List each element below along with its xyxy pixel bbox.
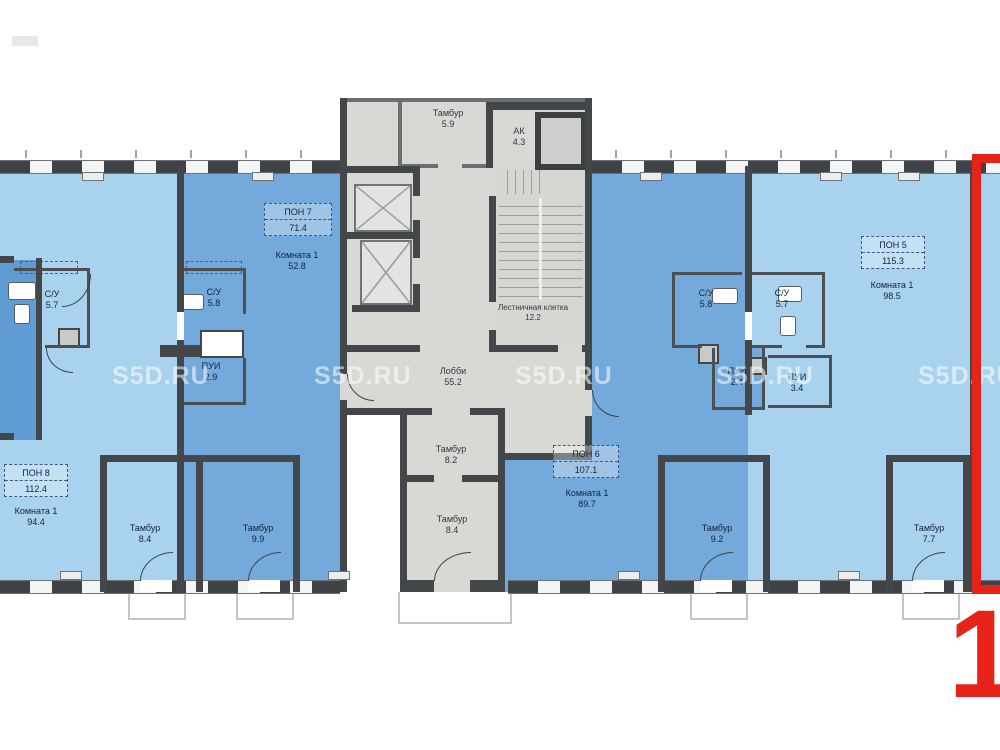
door-gap (177, 312, 184, 340)
su-wall (672, 272, 675, 348)
dimension-tick (190, 150, 192, 158)
elevator-shaft-small (354, 184, 412, 232)
unit-label-box-pon6: ПОН 6 107.1 (553, 445, 619, 478)
room-label-su58-right: С/У 5.8 (676, 288, 736, 310)
entry-porch (236, 592, 294, 620)
dimension-tick (725, 150, 727, 158)
core-tambour-divider (462, 475, 505, 482)
dimension-tick (890, 150, 892, 158)
room-label-su58-left: С/У 5.8 (184, 287, 244, 309)
core-tambour-divider (404, 475, 434, 482)
elevator-divider-wall (344, 232, 420, 239)
tambour-wall (196, 455, 203, 592)
tambur-top-left-wall (398, 100, 402, 168)
wall-sliver-right (36, 258, 42, 440)
room-label-pon7-room: Комната 1 52.8 (254, 250, 340, 272)
elevator-shaft2-bottom-wall (352, 305, 420, 312)
room-label-tambur-84-core: Тамбур 8.4 (417, 514, 487, 536)
unit-label-box-pon8: ПОН 8 112.4 (4, 464, 68, 497)
core-tambour-right-wall (498, 415, 505, 592)
lobby-bottom-wall (470, 408, 505, 415)
dimension-tick (615, 150, 617, 158)
entry-porch (128, 592, 186, 620)
wall-stub (0, 256, 14, 263)
dimension-tick (945, 150, 947, 158)
unit-name: ПОН 7 (265, 204, 331, 220)
radiator (640, 172, 662, 181)
su-wall (822, 272, 825, 348)
dimension-tick (25, 150, 27, 158)
su-wall (184, 268, 246, 271)
tambour-wall (886, 455, 970, 462)
pui-wall (768, 405, 832, 408)
pui-wall (184, 402, 246, 405)
door-gap (248, 580, 280, 592)
dimension-tick (135, 150, 137, 158)
room-label-stair: Лестничная клетка 12.2 (493, 303, 573, 322)
dimension-tick (780, 150, 782, 158)
room-label-pon5-room: Комната 1 98.5 (856, 280, 928, 302)
door-gap (912, 580, 944, 592)
radiator (618, 571, 640, 580)
dimension-tick (670, 150, 672, 158)
unit-label-box-pon5: ПОН 5 115.3 (861, 236, 925, 269)
elevator-top-wall (344, 166, 420, 173)
door-gap (585, 390, 592, 416)
lobby-bottom-wall (344, 408, 432, 415)
elevator-door-gap (413, 258, 420, 284)
unit-name: ПОН 6 (554, 446, 618, 462)
ak-top-wall (486, 102, 592, 110)
highlight-rectangle (972, 154, 1000, 594)
tambour-wall (100, 455, 107, 592)
su-wall (752, 345, 782, 348)
room-label-tambur-92: Тамбур 9.2 (682, 523, 752, 545)
room-label-pon6-room: Комната 1 89.7 (549, 488, 625, 510)
wet-wall-block (160, 345, 202, 357)
core-tambour-left-wall (400, 415, 407, 592)
unit-label-box-pon7: ПОН 7 71.4 (264, 203, 332, 236)
niche-box (200, 330, 244, 358)
room-label-su57-left: С/У 5.7 (22, 289, 82, 311)
door-gap (140, 580, 172, 592)
tambour-wall (963, 455, 970, 592)
shaft-cross-icon (356, 186, 410, 230)
pui-wall (829, 355, 832, 408)
radiator (328, 571, 350, 580)
room-label-tambur-82: Тамбур 8.2 (416, 444, 486, 466)
radiator (898, 172, 920, 181)
watermark: S5D.RU (716, 362, 814, 391)
unit-area: 115.3 (862, 253, 924, 268)
elevator-shaft-large (360, 240, 412, 305)
entry-porch-main (398, 592, 512, 624)
entry-steps (500, 170, 540, 194)
room-label-pon8-room: Комната 1 94.4 (0, 506, 72, 528)
door-gap (558, 345, 582, 352)
highlight-number: 1 (948, 592, 1000, 717)
pui-wall (243, 358, 246, 402)
tambour-wall (293, 455, 300, 592)
radiator (820, 172, 842, 181)
unit-area: 107.1 (554, 462, 618, 477)
watermark: S5D.RU (515, 362, 613, 391)
door-gap (745, 312, 752, 340)
dimension-tick (835, 150, 837, 158)
unit-name: ПОН 5 (862, 237, 924, 253)
elevator-right-wall (413, 166, 420, 312)
floor-plan-canvas: ПОН 7 71.4 Комната 1 52.8 ПОН 8 112.4 Ко… (0, 0, 1000, 750)
entrance-bottom-wall (470, 580, 505, 592)
radiator (60, 571, 82, 580)
wall-stub (0, 433, 14, 440)
dimension-tick (80, 150, 82, 158)
entrance-bottom-wall (404, 580, 434, 592)
watermark: S5D.RU (112, 362, 210, 391)
tambour-wall (886, 455, 893, 592)
dimension-tick (245, 150, 247, 158)
unit-pon6-ext-fill (505, 460, 592, 592)
room-label-tambur-84-left: Тамбур 8.4 (110, 523, 180, 545)
top-window-wall-left (0, 160, 340, 174)
su-wall (672, 345, 702, 348)
watermark: S5D.RU (314, 362, 412, 391)
room-label-tambur-99: Тамбур 9.9 (223, 523, 293, 545)
radiator (252, 172, 274, 181)
vent-shaft-box (535, 112, 587, 170)
elevator-door-gap (413, 196, 420, 220)
su-wall (806, 345, 825, 348)
stair-flight-divider (539, 198, 542, 300)
entry-porch (690, 592, 748, 620)
room-label-su57-right: С/У 5.7 (752, 288, 812, 310)
su-wall (672, 272, 742, 275)
radiator (82, 172, 104, 181)
tambour-wall (658, 455, 665, 592)
tambour-wall (763, 455, 770, 592)
toilet-fixture (780, 316, 796, 336)
unit-area: 112.4 (5, 481, 67, 496)
door-gap (700, 580, 732, 592)
su-wall (752, 272, 825, 275)
room-label-tambur-top: Тамбур 5.9 (413, 108, 483, 130)
room-label-lobby: Лобби 55.2 (418, 366, 488, 388)
room-label-tambur-77: Тамбур 7.7 (894, 523, 964, 545)
room-label-ak: АК 4.3 (499, 126, 539, 148)
shaft-cross-icon (362, 242, 410, 303)
pui-wall (768, 355, 832, 358)
dimension-tick (300, 150, 302, 158)
ak-left-wall (486, 102, 493, 168)
unit-name: ПОН 8 (5, 465, 67, 481)
radiator (838, 571, 860, 580)
su-wall (14, 268, 90, 271)
scan-artifact (12, 36, 38, 46)
elevator-block-bottom-wall (340, 345, 420, 352)
pui-wall (712, 407, 765, 410)
unit-area: 71.4 (265, 220, 331, 235)
tambour-wall (658, 455, 770, 462)
